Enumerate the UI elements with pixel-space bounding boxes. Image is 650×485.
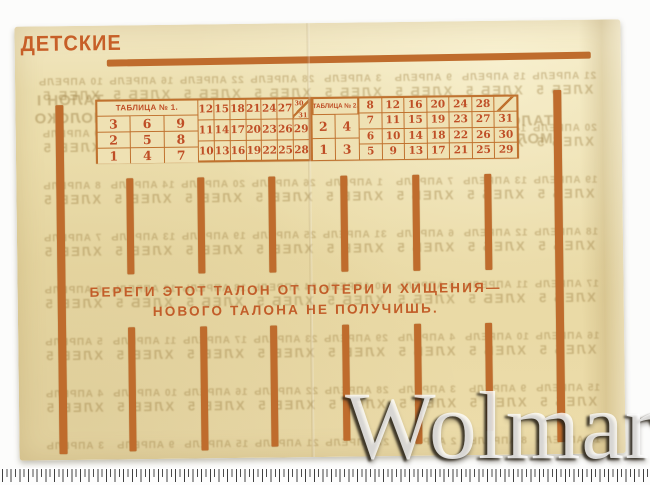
ghost-product: ХЛЕБ 5 (257, 449, 316, 450)
ghost-product: ХЛЕБ 5 (327, 448, 386, 450)
card-title: ДЕТСКИЕ (20, 31, 121, 57)
ink-bar-long-right (553, 90, 565, 442)
ghost-cell: 3 АПРЕЛЬХЛЕБ 5 (39, 428, 110, 451)
ghost-product: ХЛЕБ 5 (325, 240, 384, 256)
ghost-product: ХЛЕБ 5 (113, 243, 172, 259)
ghost-product: ХЛЕБ 5 (184, 242, 243, 258)
ghost-date: 8 АПРЕЛЬ (42, 181, 100, 193)
ghost-date: 20 АПРЕЛЬ (180, 179, 245, 191)
ink-bar (126, 178, 134, 274)
table-cell: 29 (495, 143, 517, 158)
ghost-product: ХЛЕБ 5 (42, 140, 101, 156)
table-cell: 16 (230, 141, 245, 161)
ghost-cell: 8 АПРЕЛЬХЛЕБ 5 (36, 168, 107, 221)
ghost-date: 6 АПРЕЛЬ (396, 228, 454, 240)
ghost-product: ХЛЕБ 5 (327, 396, 386, 412)
ghost-product: ХЛЕБ 5 (254, 241, 313, 257)
ghost-product: ХЛЕБ 5 (256, 345, 315, 361)
ghost-date: 22 АПРЕЛЬ (253, 386, 318, 398)
ink-bar (270, 326, 278, 447)
table-cell: 28 (472, 96, 494, 111)
ink-bar (128, 327, 137, 451)
ghost-date: 26 АПРЕЛЬ (251, 178, 316, 190)
diagonal-top-number: 30 (294, 99, 303, 107)
table-1-left-grid: ТАБЛИЦА № 1.369258147 (97, 100, 198, 162)
ghost-cell: 13 АПРЕЛЬХЛЕБ 5 (459, 162, 530, 215)
warning-text: БЕРЕГИ ЭТОТ ТАЛОН ОТ ПОТЕРИ И ХИЩЕНИЯ— Н… (18, 277, 574, 324)
table-cell: 18 (427, 128, 449, 143)
ghost-cell: 28 АПРЕЛЬХЛЕБ 5 (321, 372, 392, 425)
ghost-date: 13 АПРЕЛЬ (110, 232, 175, 244)
ghost-cell: 8 АПРЕЛЬХЛЕБ 5 (462, 422, 533, 450)
ghost-cell: 5 АПРЕЛЬХЛЕБ 5 (38, 324, 109, 377)
ghost-product: ХЛЕБ 5 (115, 399, 174, 415)
scanned-ration-card: 21 АПРЕЛЬХЛЕБ 515 АПРЕЛЬХЛЕБ 59 АПРЕЛЬХЛ… (0, 0, 650, 485)
table-cell: 27 (278, 99, 293, 119)
ghost-cell: 7 АПРЕЛЬХЛЕБ 5 (37, 220, 108, 273)
ghost-product: ХЛЕБ 5 (42, 192, 101, 208)
ghost-product: ХЛЕБ 5 (45, 400, 104, 416)
ghost-cell: 1 АПРЕЛЬХЛЕБ 5 (318, 164, 389, 217)
ghost-product: ХЛЕБ 5 (466, 239, 525, 255)
ghost-date: 9 АПРЕЛЬ (394, 72, 452, 84)
ghost-product: ХЛЕБ 5 (397, 343, 456, 359)
ghost-date: 3 АПРЕЛЬ (46, 441, 104, 451)
table-cell: 13 (405, 144, 427, 159)
table-cell: 16 (404, 97, 426, 112)
table-cell: 6 (360, 129, 382, 144)
ghost-product: ХЛЕБ 5 (256, 397, 315, 413)
ghost-product: ХЛЕБ 5 (468, 394, 527, 410)
ghost-date: 10 АПРЕЛЬ (464, 331, 529, 343)
table-cell-diagonal (495, 96, 517, 111)
ghost-date: 22 АПРЕЛЬ (179, 75, 244, 87)
ink-bar (412, 175, 420, 271)
table-cell: 14 (214, 120, 229, 140)
table-cell: 10 (199, 141, 214, 161)
ghost-product: ХЛЕБ 5 (185, 346, 244, 362)
ghost-product: ХЛЕБ 5 (395, 187, 454, 203)
ghost-cell: 10 АПРЕЛЬХЛЕБ 5 (109, 375, 180, 428)
table-cell: 23 (262, 120, 277, 140)
table-cell: 4 (131, 147, 164, 162)
ghost-date: 10 АПРЕЛЬ (38, 77, 103, 89)
ghost-product: ХЛЕБ 5 (186, 450, 245, 451)
ghost-product: ХЛЕБ 5 (468, 446, 527, 450)
ghost-date: 1 АПРЕЛЬ (324, 177, 382, 189)
ghost-date: 16 АПРЕЛЬ (108, 76, 173, 88)
ghost-cell: 6 АПРЕЛЬХЛЕБ 5 (389, 215, 460, 268)
ghost-cell: 19 АПРЕЛЬХЛЕБ 5 (178, 218, 249, 271)
table-cell: 7 (165, 147, 198, 162)
ghost-date: 3 АПРЕЛЬ (323, 73, 381, 85)
ghost-cell: 29 АПРЕЛЬХЛЕБ 5 (320, 320, 391, 373)
ghost-cell: 14 АПРЕЛЬХЛЕБ 5 (107, 167, 178, 220)
table-cell: 21 (246, 99, 261, 119)
ghost-cell: 2 АПРЕЛЬХЛЕБ 5 (392, 423, 463, 450)
table-cell: 8 (164, 131, 197, 146)
table-cell: 20 (427, 97, 449, 112)
table-2: ТАБЛИЦА № 2.2413 81216202428711151923273… (310, 95, 518, 162)
table-header: ТАБЛИЦА № 2. (313, 98, 357, 114)
ghost-product: ХЛЕБ 5 (183, 190, 242, 206)
ghost-product: ХЛЕБ 5 (395, 239, 454, 255)
ghost-product: ХЛЕБ 5 (324, 188, 383, 204)
table-2-left-grid: ТАБЛИЦА № 2.2413 (312, 98, 359, 160)
table-cell: 4 (335, 114, 358, 137)
ghost-cell: 9 АПРЕЛЬХЛЕБ 5 (462, 370, 533, 423)
table-cell: 19 (427, 112, 449, 127)
ghost-date: 28 АПРЕЛЬ (324, 385, 389, 397)
table-cell: 26 (278, 119, 293, 139)
ghost-date: 17 АПРЕЛЬ (182, 335, 247, 347)
table-header: ТАБЛИЦА № 1. (97, 100, 197, 115)
table-1: ТАБЛИЦА № 1.369258147 121518212427303111… (95, 97, 310, 164)
table-cell: 20 (246, 120, 261, 140)
table-2-right-grid: 8121620242871115192327316101418222630591… (359, 96, 517, 159)
ghost-cell: 15 АПРЕЛЬХЛЕБ 5 (180, 426, 251, 451)
ghost-product: ХЛЕБ 5 (41, 88, 100, 104)
table-cell: 17 (428, 143, 450, 158)
ghost-date: 10 АПРЕЛЬ (112, 388, 177, 400)
table-cell: 5 (360, 144, 382, 159)
table-cell: 14 (405, 128, 427, 143)
table-cell: 30 (495, 127, 517, 142)
paper-edge-shading (578, 19, 625, 453)
diagonal-bottom-number: 31 (298, 111, 307, 119)
ghost-product: ХЛЕБ 5 (113, 191, 172, 207)
table-cell: 28 (294, 140, 309, 160)
table-cell: 21 (450, 143, 472, 158)
ink-bar (485, 323, 493, 431)
ghost-date: 2 АПРЕЛЬ (398, 436, 456, 448)
table-cell: 7 (359, 113, 381, 128)
ghost-product: ХЛЕБ 5 (467, 342, 526, 358)
ghost-date: 14 АПРЕЛЬ (110, 180, 175, 192)
table-cell: 11 (382, 113, 404, 128)
table-cell: 12 (382, 97, 404, 112)
table-cell: 9 (382, 144, 404, 159)
table-cell: 3 (336, 138, 359, 159)
ink-bar (340, 176, 348, 272)
ghost-date: 25 АПРЕЛЬ (251, 230, 316, 242)
table-cell: 8 (359, 98, 381, 113)
table-cell: 31 (495, 112, 517, 127)
table-cell: 15 (214, 100, 229, 120)
ink-bar (197, 177, 205, 273)
table-cell: 2 (312, 114, 335, 137)
table-cell: 17 (230, 120, 245, 140)
ghost-cell: 11 АПРЕЛЬХЛЕБ 5 (109, 323, 180, 376)
table-cell: 22 (450, 128, 472, 143)
ghost-date: 3 АПРЕЛЬ (397, 384, 455, 396)
ink-bar (268, 177, 276, 273)
ink-bar (342, 325, 350, 441)
table-cell: 19 (246, 141, 261, 161)
ghost-date: 7 АПРЕЛЬ (395, 176, 453, 188)
ghost-date: 23 АПРЕЛЬ (253, 334, 318, 346)
table-cell: 6 (131, 115, 164, 130)
ghost-date: 13 АПРЕЛЬ (462, 175, 527, 187)
ghost-product: ХЛЕБ 5 (115, 347, 174, 363)
ghost-cell: 4 АПРЕЛЬХЛЕБ 5 (39, 376, 110, 429)
ghost-cell: 13 АПРЕЛЬХЛЕБ 5 (107, 219, 178, 272)
ghost-product: ХЛЕБ 5 (44, 348, 103, 364)
table-cell: 1 (97, 148, 130, 163)
table-cell: 23 (450, 112, 472, 127)
ghost-cell: 4 АПРЕЛЬХЛЕБ 5 (390, 319, 461, 372)
ghost-product: ХЛЕБ 5 (186, 398, 245, 414)
table-cell: 24 (262, 99, 277, 119)
ghost-date: 29 АПРЕЛЬ (323, 333, 388, 345)
table-cell: 12 (198, 100, 213, 120)
table-cell: 1 (312, 138, 335, 159)
top-rule (107, 52, 591, 67)
ghost-date: 15 АПРЕЛЬ (461, 71, 526, 83)
ink-bar-long-left (55, 105, 67, 454)
table-cell: 3 (97, 116, 130, 131)
ghost-cell: 3 АПРЕЛЬХЛЕБ 5 (391, 371, 462, 424)
ghost-date: 28 АПРЕЛЬ (249, 74, 314, 86)
ghost-cell: 27 АПРЕЛЬХЛЕБ 5 (321, 424, 392, 450)
ghost-cell: 12 АПРЕЛЬХЛЕБ 5 (460, 214, 531, 267)
ghost-date: 8 АПРЕЛЬ (469, 435, 527, 447)
ruler-scale (0, 468, 650, 485)
ghost-cell: 9 АПРЕЛЬХЛЕБ 5 (110, 427, 181, 451)
table-cell: 9 (164, 115, 197, 130)
table-cell: 13 (215, 141, 230, 161)
ghost-product: ХЛЕБ 5 (43, 244, 102, 260)
ghost-date: 15 АПРЕЛЬ (183, 439, 248, 451)
table-cell: 10 (382, 128, 404, 143)
table-cell: 18 (230, 99, 245, 119)
ghost-product: ХЛЕБ 5 (326, 344, 385, 360)
ghost-date: 19 АПРЕЛЬ (181, 231, 246, 243)
table-cell: 25 (278, 140, 293, 160)
ink-bar (200, 326, 209, 450)
ink-bar (414, 324, 422, 444)
ghost-date: 9 АПРЕЛЬ (468, 383, 526, 395)
ghost-product: ХЛЕБ 5 (398, 447, 457, 450)
ghost-date: 4 АПРЕЛЬ (397, 332, 455, 344)
table-cell: 24 (450, 97, 472, 112)
ghost-cell: 16 АПРЕЛЬХЛЕБ 5 (180, 374, 251, 427)
ink-bar (484, 174, 492, 270)
table-cell: 2 (97, 132, 130, 147)
ghost-product: ХЛЕБ 5 (465, 187, 524, 203)
ghost-date: 9 АПРЕЛЬ (116, 440, 174, 451)
ghost-cell: 7 АПРЕЛЬХЛЕБ 5 (389, 163, 460, 216)
ghost-date: 9 АПРЕЛЬ (42, 129, 100, 141)
table-cell: 25 (473, 143, 495, 158)
table-cell: 22 (262, 140, 277, 160)
ghost-cell: 20 АПРЕЛЬХЛЕБ 5 (177, 166, 248, 219)
ghost-date: 5 АПРЕЛЬ (44, 337, 102, 349)
fold-crease (306, 23, 314, 457)
table-cell: 26 (472, 127, 494, 142)
table-1-right-grid: 1215182124273031111417202326291013161922… (198, 99, 309, 161)
table-cell: 5 (131, 131, 164, 146)
table-cell: 11 (199, 120, 214, 140)
table-cell-diagonal: 3031 (293, 99, 308, 119)
ghost-date: 11 АПРЕЛЬ (112, 336, 176, 348)
ghost-product: ХЛЕБ 5 (254, 189, 313, 205)
ghost-date: 21 АПРЕЛЬ (254, 438, 319, 450)
table-cell: 27 (472, 112, 494, 127)
ghost-date: 4 АПРЕЛЬ (45, 389, 103, 401)
ghost-cell: 10 АПРЕЛЬХЛЕБ 5 (461, 318, 532, 371)
table-cell: 15 (405, 113, 427, 128)
ghost-cell: 17 АПРЕЛЬХЛЕБ 5 (179, 322, 250, 375)
ghost-date: 31 АПРЕЛЬ (322, 229, 387, 241)
table-cell: 29 (294, 119, 309, 139)
ghost-date: 27 АПРЕЛЬ (324, 437, 389, 449)
ghost-date: 16 АПРЕЛЬ (183, 387, 248, 399)
ghost-product: ХЛЕБ 5 (397, 395, 456, 411)
ghost-cell: 31 АПРЕЛЬХЛЕБ 5 (319, 216, 390, 269)
ration-card-paper: 21 АПРЕЛЬХЛЕБ 515 АПРЕЛЬХЛЕБ 59 АПРЕЛЬХЛ… (14, 19, 625, 460)
ghost-date: 12 АПРЕЛЬ (463, 227, 528, 239)
ghost-date: 7 АПРЕЛЬ (43, 233, 101, 245)
